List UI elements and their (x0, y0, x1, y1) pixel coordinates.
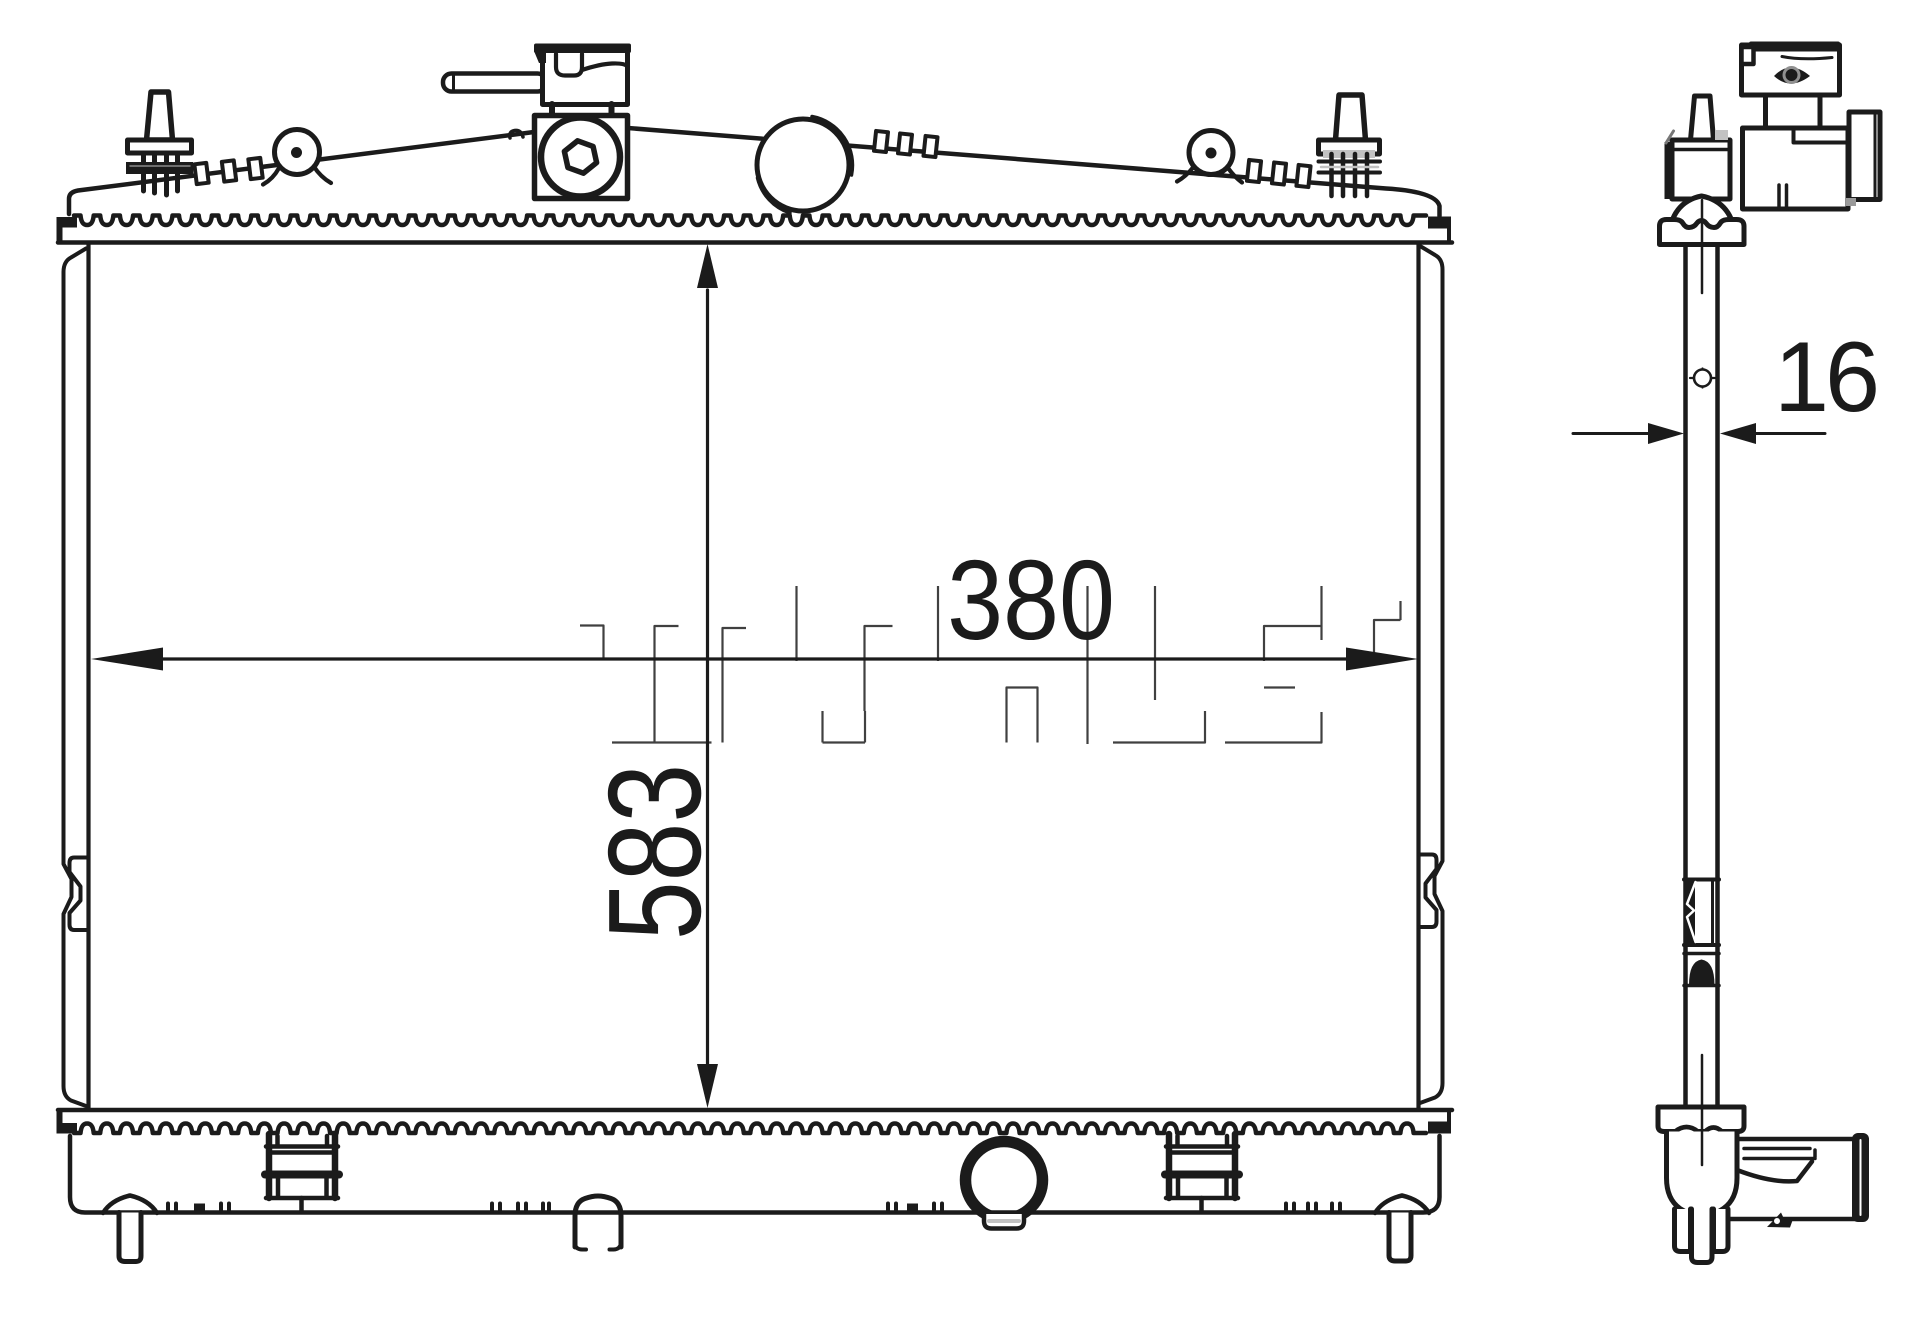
svg-text:380: 380 (947, 537, 1115, 664)
svg-text:583: 583 (582, 764, 729, 940)
svg-text:16: 16 (1774, 321, 1876, 432)
